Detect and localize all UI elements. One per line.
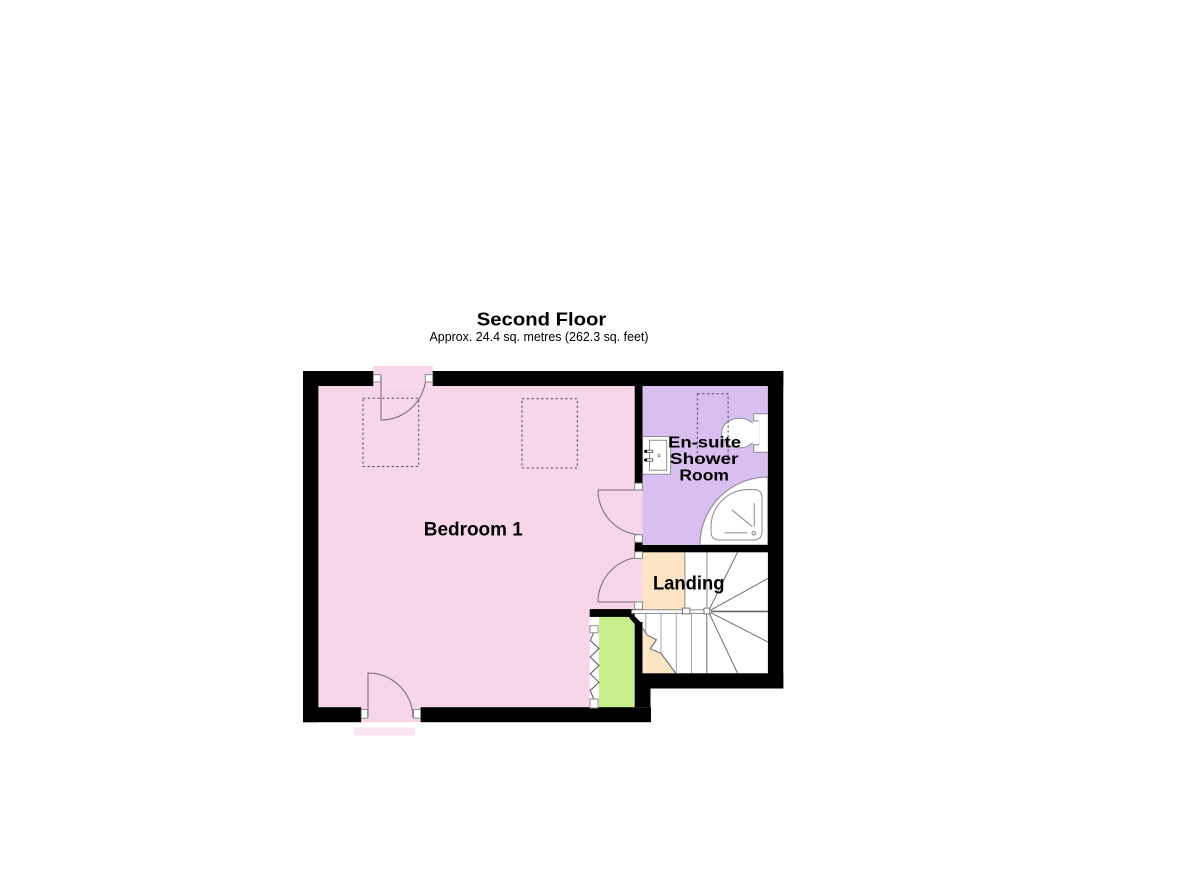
svg-text:Second Floor: Second Floor [477,309,607,330]
svg-text:Shower: Shower [670,451,739,468]
svg-text:Room: Room [679,468,729,485]
svg-text:Bedroom 1: Bedroom 1 [424,519,523,541]
svg-text:En-suite: En-suite [668,435,741,452]
svg-text:Landing: Landing [653,573,725,595]
svg-text:Approx. 24.4 sq. metres (262.3: Approx. 24.4 sq. metres (262.3 sq. feet) [430,329,649,344]
